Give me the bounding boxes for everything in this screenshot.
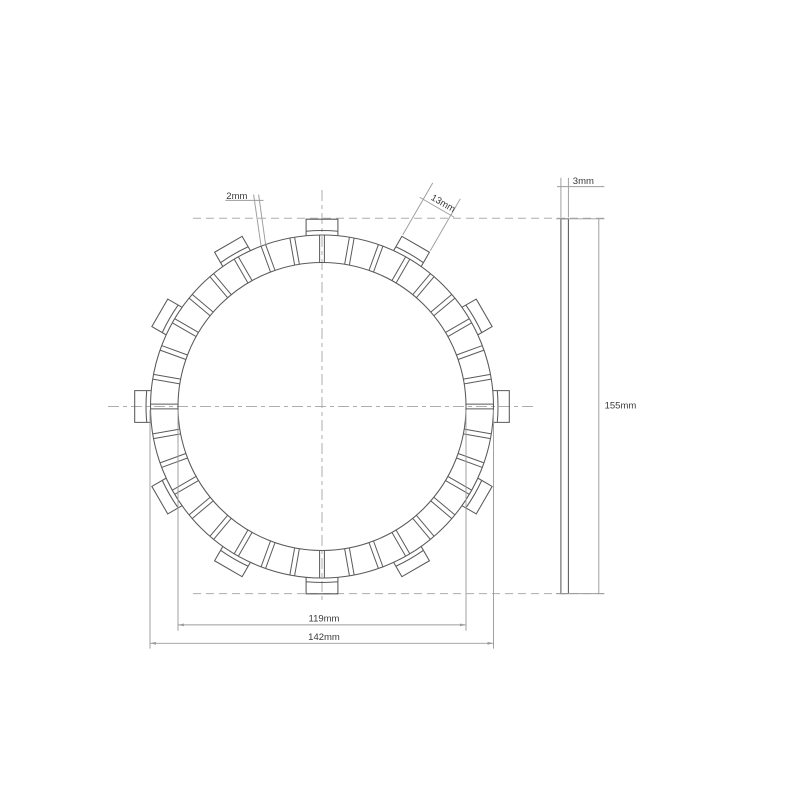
svg-text:2mm: 2mm [226,191,247,202]
svg-text:119mm: 119mm [309,613,340,624]
svg-text:3mm: 3mm [573,176,594,187]
svg-text:142mm: 142mm [308,632,340,643]
svg-text:155mm: 155mm [605,401,637,412]
